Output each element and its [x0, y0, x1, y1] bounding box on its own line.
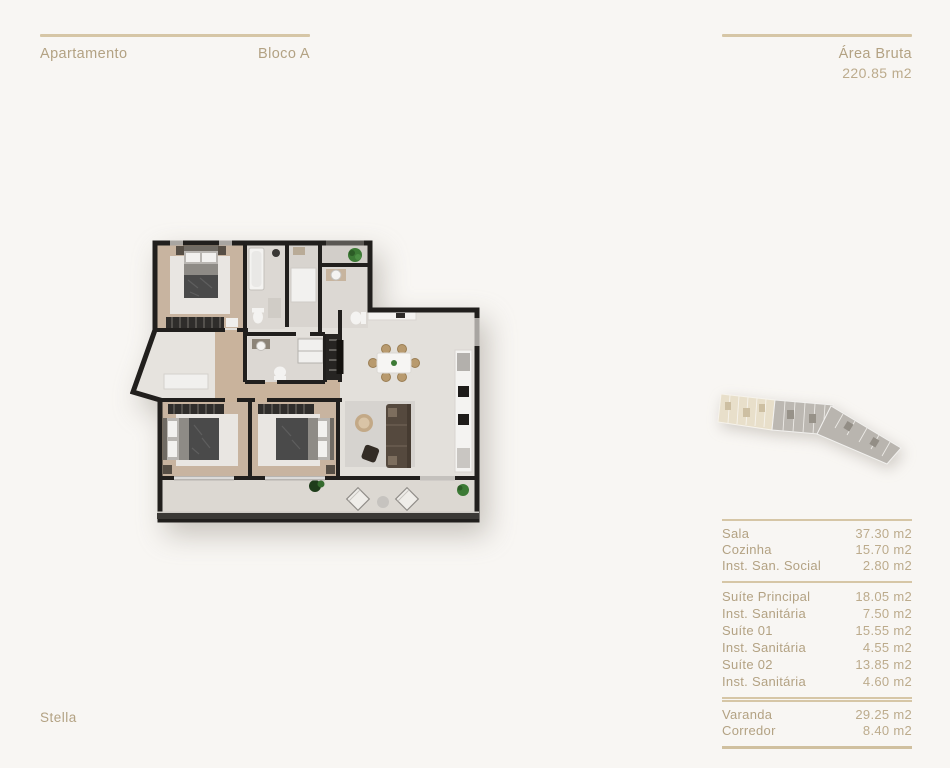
- side-table: [377, 496, 389, 508]
- sink: [257, 342, 266, 351]
- header-right: Área Bruta 220.85 m2: [722, 34, 912, 81]
- toilet: [351, 312, 362, 325]
- centerpiece-plant-icon: [391, 360, 397, 366]
- bathroom-middle: [248, 337, 325, 382]
- master-bedroom: [157, 245, 243, 328]
- gross-area-value: 220.85 m2: [722, 65, 912, 81]
- toilet: [274, 367, 286, 378]
- tv-panel: [337, 340, 344, 374]
- area-row: Suíte 0213.85 m2: [722, 656, 912, 673]
- brand-logo: Stella: [40, 710, 77, 725]
- area-row: Inst. Sanitária4.55 m2: [722, 639, 912, 656]
- wardrobe: [168, 404, 224, 414]
- area-row: Inst. Sanitária4.60 m2: [722, 673, 912, 690]
- area-row: Corredor8.40 m2: [722, 723, 912, 739]
- bathroom-social: [322, 267, 368, 328]
- header-left: Apartamento Bloco A: [40, 34, 310, 62]
- areas-group-private: Suíte Principal18.05 m2 Inst. Sanitária7…: [722, 581, 912, 697]
- areas-table: Sala37.30 m2 Cozinha15.70 m2 Inst. San. …: [722, 519, 912, 749]
- area-row: Sala37.30 m2: [722, 526, 912, 542]
- area-row: Inst. Sanitária7.50 m2: [722, 605, 912, 622]
- block-label: Bloco A: [258, 46, 310, 62]
- kitchen-counter: [455, 350, 472, 472]
- bathroom-ensuite: [247, 245, 285, 329]
- header-left-rule: [40, 34, 310, 37]
- header-right-rule: [722, 34, 912, 37]
- building-key-plan: [715, 378, 915, 468]
- areas-group-social: Sala37.30 m2 Cozinha15.70 m2 Inst. San. …: [722, 521, 912, 581]
- corridor-floor: [215, 330, 245, 402]
- entry-console: [164, 374, 208, 389]
- key-plan-graphic: [718, 394, 901, 464]
- wardrobe: [166, 317, 224, 328]
- sink: [272, 249, 280, 257]
- area-row: Cozinha15.70 m2: [722, 542, 912, 558]
- gross-area-label: Área Bruta: [722, 46, 912, 62]
- area-row: Varanda29.25 m2: [722, 707, 912, 723]
- areas-group-exterior: Varanda29.25 m2 Corredor8.40 m2: [722, 697, 912, 746]
- sink: [331, 270, 341, 280]
- floor-plan-graphic: [133, 241, 480, 521]
- page-title: Apartamento: [40, 46, 127, 62]
- balcony-railing: [157, 513, 479, 519]
- cooktop: [458, 386, 469, 397]
- suite-01: [162, 402, 248, 476]
- sink: [458, 414, 469, 425]
- cabinet: [291, 268, 316, 302]
- suite-02: [252, 402, 336, 476]
- area-row: Inst. San. Social2.80 m2: [722, 558, 912, 574]
- area-row: Suíte Principal18.05 m2: [722, 588, 912, 605]
- area-row: Suíte 0115.55 m2: [722, 622, 912, 639]
- wardrobe: [258, 404, 314, 414]
- apartment-floor-plan: [130, 220, 510, 540]
- closet: [289, 245, 318, 327]
- plant-nook: [322, 245, 368, 265]
- sofa: [386, 404, 411, 468]
